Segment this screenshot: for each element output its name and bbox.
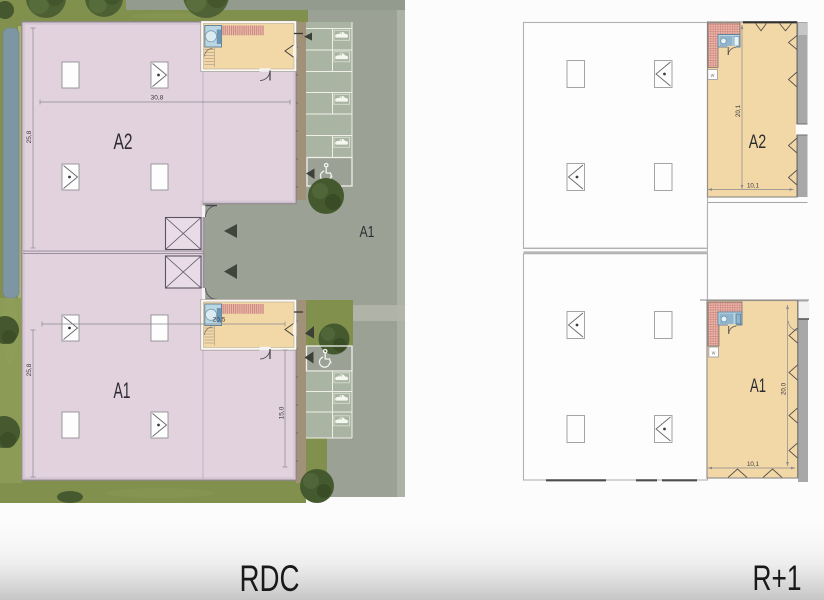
svg-text:25,8: 25,8 bbox=[26, 130, 33, 143]
svg-text:w: w bbox=[712, 351, 716, 357]
svg-text:25,8: 25,8 bbox=[26, 363, 33, 376]
svg-text:15,0: 15,0 bbox=[279, 406, 286, 419]
svg-text:20,0: 20,0 bbox=[781, 382, 788, 395]
svg-text:A1: A1 bbox=[114, 378, 131, 403]
svg-text:20,1: 20,1 bbox=[735, 104, 742, 117]
svg-text:w: w bbox=[711, 73, 715, 79]
svg-text:10,1: 10,1 bbox=[747, 183, 760, 190]
svg-text:20,5: 20,5 bbox=[213, 317, 226, 324]
svg-text:RDC: RDC bbox=[240, 558, 300, 599]
svg-text:R+1: R+1 bbox=[753, 559, 802, 598]
svg-text:A2: A2 bbox=[749, 132, 767, 153]
svg-text:A1: A1 bbox=[360, 224, 375, 241]
svg-text:A1: A1 bbox=[750, 376, 766, 397]
svg-text:10,1: 10,1 bbox=[747, 461, 760, 468]
svg-text:A2: A2 bbox=[114, 129, 133, 154]
svg-text:30,8: 30,8 bbox=[151, 95, 164, 102]
